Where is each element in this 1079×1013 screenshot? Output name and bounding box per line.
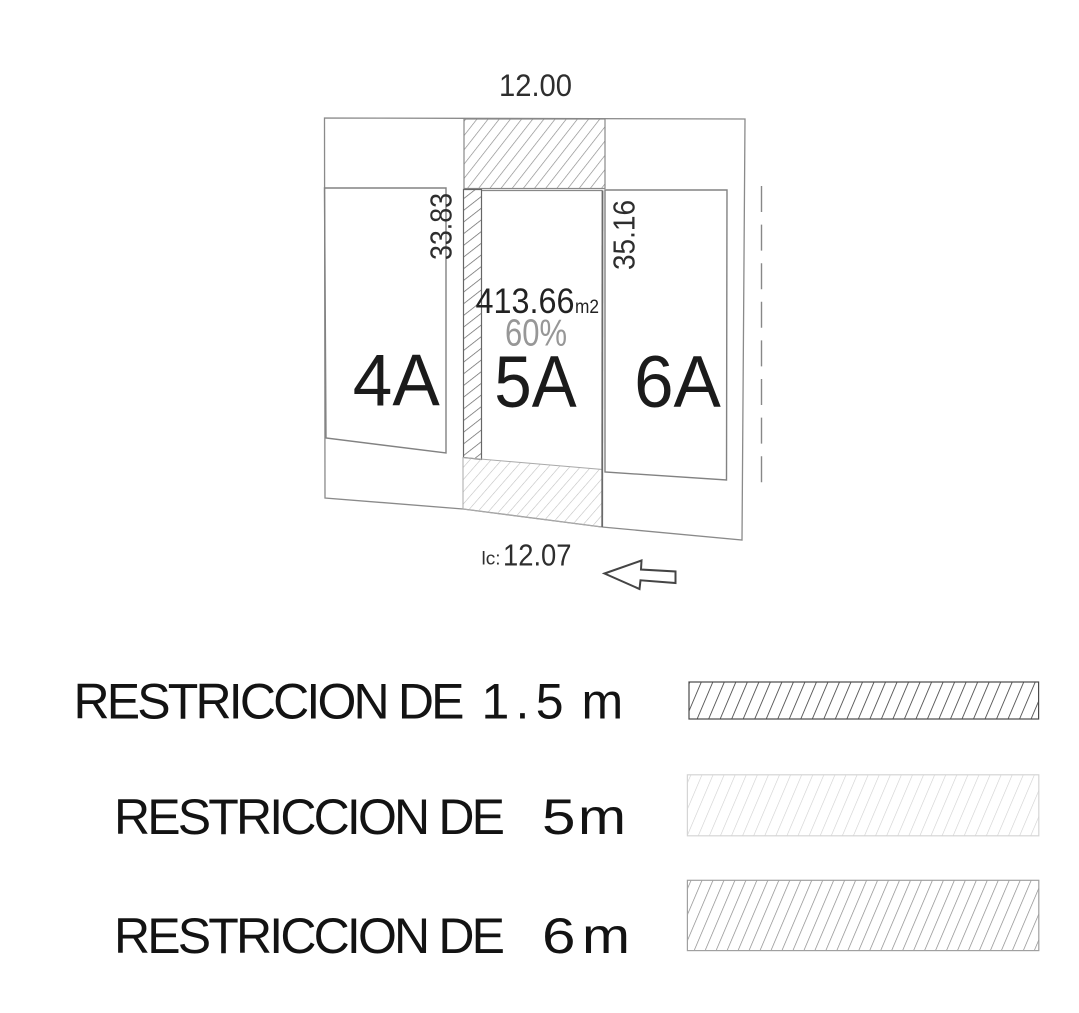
- svg-text:33.83: 33.83: [424, 193, 459, 260]
- svg-text:1.5: 1.5: [482, 673, 564, 729]
- svg-text:6: 6: [542, 908, 576, 964]
- svg-text:m: m: [578, 789, 626, 845]
- svg-text:12.00: 12.00: [499, 67, 572, 103]
- svg-text:5: 5: [542, 789, 576, 845]
- svg-text:RESTRICCION DE: RESTRICCION DE: [114, 908, 505, 964]
- svg-text:4A: 4A: [353, 341, 440, 422]
- svg-text:RESTRICCION DE: RESTRICCION DE: [114, 789, 505, 845]
- svg-text:lc:: lc:: [482, 549, 501, 569]
- svg-text:6A: 6A: [634, 342, 721, 423]
- svg-text:m2: m2: [575, 297, 599, 318]
- svg-text:12.07: 12.07: [503, 538, 572, 573]
- svg-text:35.16: 35.16: [607, 200, 642, 270]
- svg-text:m: m: [582, 673, 624, 729]
- svg-text:RESTRICCION DE: RESTRICCION DE: [74, 673, 465, 729]
- svg-text:m: m: [582, 908, 630, 964]
- svg-text:5A: 5A: [494, 342, 577, 423]
